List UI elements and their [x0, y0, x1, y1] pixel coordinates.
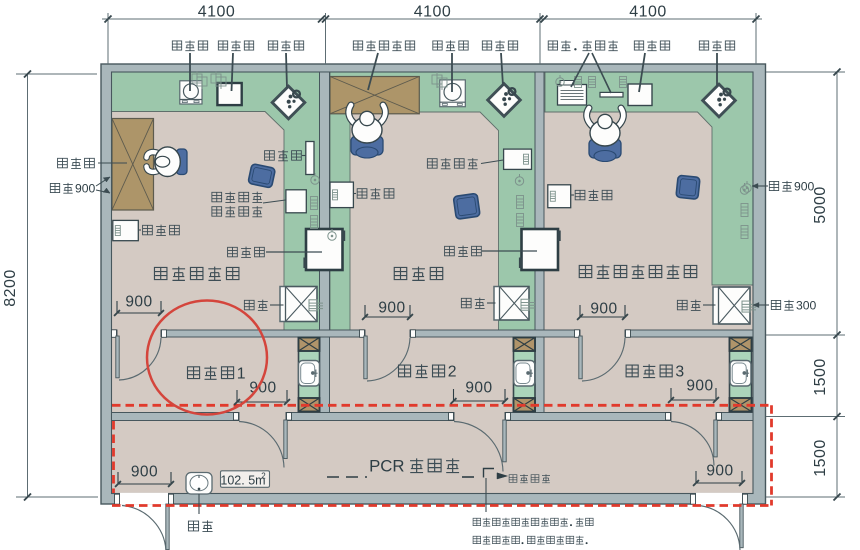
svg-text:PCR: PCR — [369, 456, 404, 475]
svg-text:3: 3 — [675, 364, 684, 381]
svg-text:900: 900 — [75, 181, 96, 195]
svg-text:900: 900 — [131, 464, 158, 481]
svg-text:8200: 8200 — [2, 269, 19, 307]
svg-text:1: 1 — [237, 365, 246, 382]
svg-text:900: 900 — [378, 300, 405, 317]
svg-text:4100: 4100 — [414, 4, 452, 21]
svg-text:5000: 5000 — [812, 186, 829, 224]
svg-text:900: 900 — [686, 378, 713, 395]
svg-text:1500: 1500 — [812, 358, 829, 396]
svg-text:4100: 4100 — [629, 4, 667, 21]
svg-text:102. 5m: 102. 5m — [220, 474, 265, 488]
svg-text:300: 300 — [796, 298, 817, 312]
svg-text:2: 2 — [448, 364, 457, 381]
svg-text:900: 900 — [794, 179, 815, 193]
svg-text:900: 900 — [590, 301, 617, 318]
svg-text:900: 900 — [706, 463, 733, 480]
svg-text:2: 2 — [261, 472, 266, 481]
svg-text:900: 900 — [125, 294, 152, 311]
svg-text:4100: 4100 — [198, 4, 236, 21]
svg-text:900: 900 — [465, 380, 492, 397]
svg-text:1500: 1500 — [812, 439, 829, 477]
